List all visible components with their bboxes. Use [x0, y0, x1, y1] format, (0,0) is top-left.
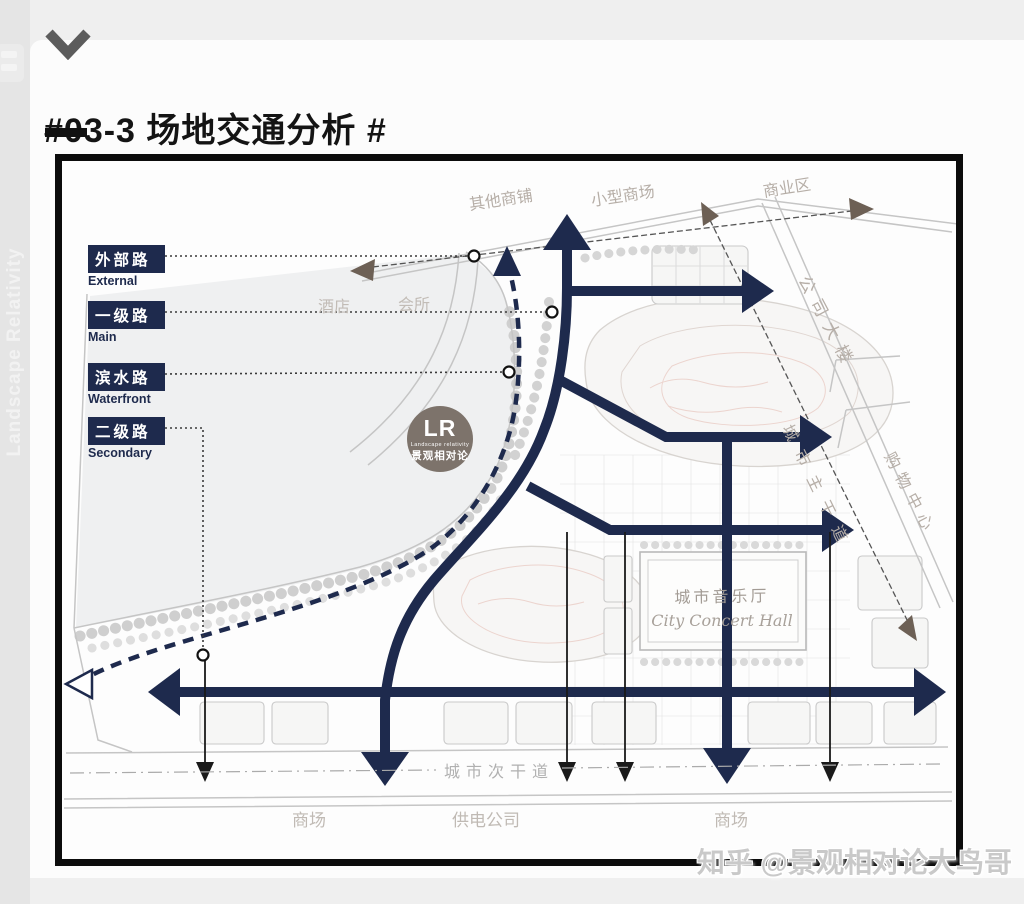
label-city-secondary-road: 城市次干道: [444, 763, 554, 781]
legend-swatch-secondary: 二级路: [88, 417, 165, 445]
label-mall-left: 商场: [292, 811, 326, 830]
hollow-arrowhead: [66, 670, 92, 698]
chevron-down-icon: [44, 26, 92, 60]
content-panel: #03-3 场地交通分析 #: [30, 40, 1024, 878]
page: Landscape Relativity #03-3 场地交通分析 #: [0, 0, 1024, 904]
brand-logo: LR Landscape relativity 景观相对论: [407, 406, 473, 472]
legend-item-secondary: 二级路 Secondary: [88, 417, 208, 460]
label-mall-right: 商场: [714, 811, 748, 830]
thumbnail-icon: [0, 44, 24, 82]
legend-item-main: 一级路 Main: [88, 301, 208, 344]
label-small-mall: 小型商场: [590, 183, 656, 210]
title-underline: [45, 128, 87, 137]
legend-swatch-external: 外部路: [88, 245, 165, 273]
legend-en-main: Main: [88, 330, 208, 344]
collapse-chevron-button[interactable]: [44, 26, 92, 65]
label-other-shops: 其他商铺: [468, 187, 534, 214]
page-title: #03-3 场地交通分析 #: [44, 103, 387, 152]
label-concert-hall-zh: 城市音乐厅: [674, 587, 769, 607]
side-vertical-text: Landscape Relativity: [4, 247, 26, 456]
label-club: 会所: [398, 296, 430, 314]
watermark-text: 知乎 @景观相对论大鸟哥: [697, 841, 1012, 881]
label-commercial-district: 商业区: [762, 176, 812, 201]
label-power-company: 供电公司: [452, 811, 520, 830]
left-sidebar-strip: Landscape Relativity: [0, 0, 30, 904]
legend-item-waterfront: 滨水路 Waterfront: [88, 363, 208, 406]
legend-en-secondary: Secondary: [88, 446, 208, 460]
legend-swatch-waterfront: 滨水路: [88, 363, 165, 391]
site-plan-frame: 其他商铺 小型商场 商业区 酒店 会所 公司大楼 城市主干道 购物中心 城市次干…: [55, 154, 963, 866]
label-concert-hall-en: City Concert Hall: [651, 611, 792, 630]
logo-name-zh: 景观相对论: [411, 451, 469, 462]
logo-initials: LR: [424, 417, 457, 440]
legend-item-external: 外部路 External: [88, 245, 208, 288]
logo-name-en: Landscape relativity: [411, 443, 470, 449]
legend-en-external: External: [88, 274, 208, 288]
legend-en-waterfront: Waterfront: [88, 392, 208, 406]
legend-swatch-main: 一级路: [88, 301, 165, 329]
label-hotel: 酒店: [318, 298, 350, 316]
